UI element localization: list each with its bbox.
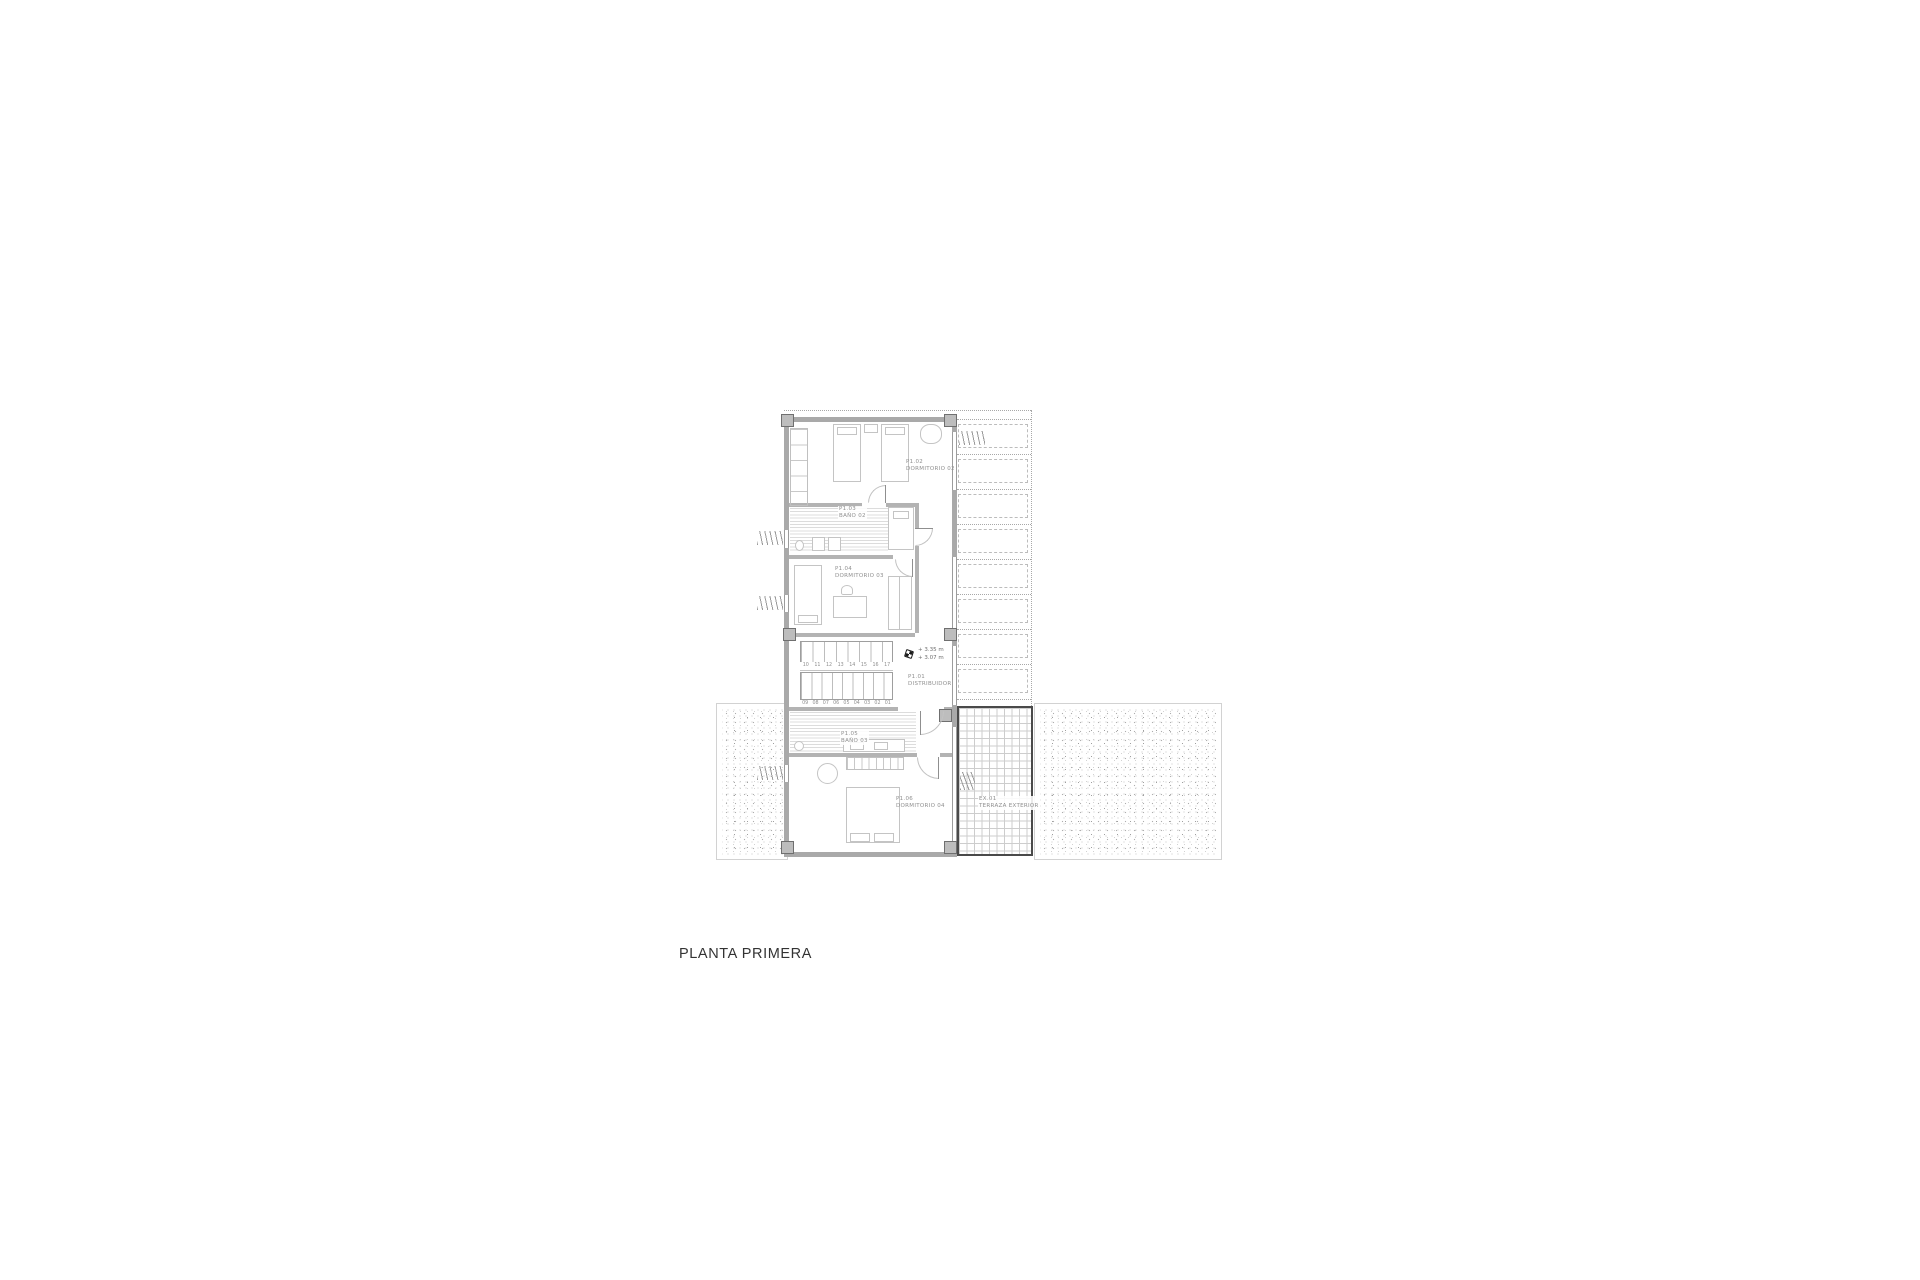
column [944, 841, 957, 854]
round-table-symbol [817, 763, 838, 784]
sink-symbol [812, 537, 825, 551]
stair-step-number: 07 [821, 700, 831, 708]
room-label-terrace: EX.01 TERRAZA EXTERIOR [978, 796, 1040, 810]
stair-step-number: 02 [872, 700, 882, 708]
column [781, 841, 794, 854]
pergola-slat [958, 459, 1028, 483]
gravel-bed-right [1040, 709, 1216, 855]
pillow-symbol [798, 615, 818, 623]
stair-step-number: 03 [862, 700, 872, 708]
room-label-bath3: P1.05 BAÑO 03 [840, 731, 869, 745]
room-code: P1.01 [908, 674, 952, 681]
stair-step-number: 14 [847, 662, 859, 670]
desk-symbol [833, 596, 867, 618]
stair-lower-flight [800, 672, 893, 700]
pergola-slat [958, 529, 1028, 553]
north-wall [784, 417, 957, 422]
pergola-slat [958, 599, 1028, 623]
terrace-slider [952, 727, 957, 845]
room-label-bedroom3: P1.04 DORMITORIO 03 [835, 566, 884, 580]
partition [940, 753, 952, 757]
sheet-title: PLANTA PRIMERA [679, 946, 812, 962]
window-shade-mark [757, 596, 783, 610]
room-name: DORMITORIO 04 [896, 803, 945, 810]
closet-divider [899, 577, 900, 629]
pillow-symbol [874, 833, 894, 842]
stair-step-number: 16 [870, 662, 882, 670]
partition [789, 555, 893, 559]
pergola-slat [958, 494, 1028, 518]
pergola-line [957, 699, 1031, 700]
pergola-line [957, 454, 1031, 455]
room-label-bedroom4: P1.06 DORMITORIO 04 [896, 796, 945, 810]
window-bath2 [784, 530, 789, 548]
column [944, 628, 957, 641]
shower-tray-symbol [893, 511, 909, 519]
toilet-symbol [794, 741, 804, 751]
pergola-edge-line [1031, 410, 1032, 706]
stair-landing-line [800, 670, 893, 671]
sink-symbol [874, 742, 888, 750]
pergola-line [957, 629, 1031, 630]
room-code: P1.05 [840, 731, 869, 738]
partition [789, 633, 915, 637]
room-label-bedroom2: P1.02 DORMITORIO 02 [906, 459, 955, 473]
stair-step-number: 11 [812, 662, 824, 670]
column [944, 414, 957, 427]
room-name: BAÑO 03 [840, 738, 869, 745]
window-shade-mark [757, 766, 783, 780]
level-upper: + 3.35 m [918, 647, 944, 655]
closet-symbol [846, 757, 904, 770]
window-shade-mark [959, 431, 985, 445]
east-wall [952, 490, 957, 557]
stair-step-numbers-lower: 090807060504030201 [800, 700, 893, 708]
window-bedroom3 [784, 595, 789, 612]
room-code: P1.02 [906, 459, 955, 466]
window-bath3 [784, 765, 789, 782]
roof-overhang-line [784, 410, 1031, 411]
pergola-line [957, 559, 1031, 560]
west-wall [784, 422, 789, 530]
stair-step-number: 13 [835, 662, 847, 670]
pergola-slat [958, 669, 1028, 693]
room-name: DORMITORIO 03 [835, 573, 884, 580]
nightstand-symbol [864, 424, 878, 433]
stair-step-number: 12 [823, 662, 835, 670]
pergola-slat [958, 634, 1028, 658]
pillow-symbol [885, 427, 905, 435]
pergola-line [957, 664, 1031, 665]
room-code: P1.03 [838, 506, 867, 513]
stair-step-number: 05 [841, 700, 851, 708]
door-leaf [938, 757, 939, 779]
door-leaf [920, 711, 921, 735]
toilet-symbol [795, 540, 804, 551]
level-values: + 3.35 m + 3.07 m [918, 647, 944, 662]
column [781, 414, 794, 427]
pillow-symbol [850, 833, 870, 842]
stair-step-numbers-upper: 1011121314151617 [800, 662, 893, 670]
room-label-bath2: P1.03 BAÑO 02 [838, 506, 867, 520]
pergola-slat [958, 564, 1028, 588]
room-name: DISTRIBUIDOR [908, 681, 952, 688]
closet-symbol [888, 576, 912, 630]
stair-step-number: 15 [858, 662, 870, 670]
window-corridor [952, 557, 957, 630]
stair-step-number: 04 [852, 700, 862, 708]
door-leaf [915, 528, 933, 529]
level-lower: + 3.07 m [918, 655, 944, 663]
room-name: TERRAZA EXTERIOR [978, 803, 1040, 810]
stair-step-number: 10 [800, 662, 812, 670]
stair-step-number: 06 [831, 700, 841, 708]
pergola-line [957, 594, 1031, 595]
floor-plan-sheet: 1011121314151617 090807060504030201 + 3.… [0, 0, 1920, 1280]
room-name: BAÑO 02 [838, 513, 867, 520]
corridor-wall [915, 546, 919, 633]
stair-step-number: 09 [800, 700, 810, 708]
door-leaf [885, 485, 886, 503]
chair-symbol [841, 585, 853, 595]
east-wall [952, 705, 957, 727]
column [783, 628, 796, 641]
window-shade-mark [757, 531, 783, 545]
room-label-distribuidor: P1.01 DISTRIBUIDOR [908, 674, 952, 688]
stair-step-number: 08 [810, 700, 820, 708]
room-code: P1.06 [896, 796, 945, 803]
pergola-line [957, 419, 1031, 420]
door-leaf [912, 559, 913, 577]
room-code: P1.04 [835, 566, 884, 573]
pillow-symbol [837, 427, 857, 435]
sink-symbol [828, 537, 841, 551]
south-wall [784, 852, 957, 857]
pergola-line [957, 524, 1031, 525]
gravel-bed-left [722, 709, 783, 855]
armchair-symbol [920, 424, 942, 444]
corridor-wall [915, 503, 919, 528]
terrace-lounger-symbol [960, 772, 975, 790]
wardrobe-symbol [790, 428, 808, 506]
room-name: DORMITORIO 02 [906, 466, 955, 473]
pergola-line [957, 489, 1031, 490]
room-code: EX.01 [978, 796, 1040, 803]
stair-step-number: 01 [883, 700, 893, 708]
stair-step-number: 17 [881, 662, 893, 670]
window-landing [952, 646, 957, 705]
